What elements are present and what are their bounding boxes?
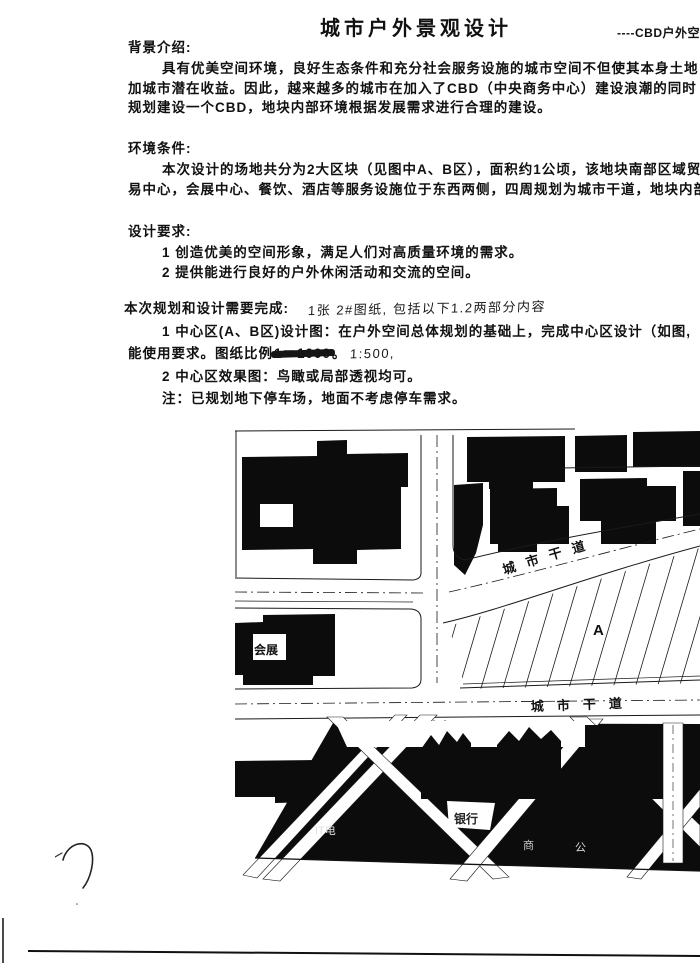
building-block [683, 471, 700, 526]
background-line: 加城市潜在收益。因此，越来越多的城市在加入了CBD（中央商务中心）建设浪潮的同时 [128, 77, 697, 97]
map-border-top [235, 429, 575, 431]
building-block [454, 483, 483, 575]
road-label-lower: 城市干道 [531, 695, 635, 714]
building-notch [260, 504, 293, 527]
requirement-item: 1 创造优美的空间形象，满足人们对高质量环境的需求。 [162, 241, 523, 261]
environment-line: 本次设计的场地共分为2大区块（见图中A、B区），面积约1公顷，该地块南部区域贸 [162, 158, 700, 178]
building-block [580, 478, 676, 544]
handwritten-scale: 1:500, [349, 346, 395, 362]
road-centerline [449, 529, 700, 592]
handwritten-note: 1张 2#图纸, 包括以下1.2两部分内容 [307, 296, 546, 319]
bank-label: 银行 [454, 811, 478, 826]
south-label-gong: 公 [575, 842, 586, 854]
page-title: 城市户外景观设计 [320, 12, 512, 41]
pen-mark [55, 838, 115, 913]
task-item: 1 中心区(A、B区)设计图：在户外空间总体规划的基础上，完成中心区设计（如图, [162, 320, 691, 340]
exhibition-label: 会展 [254, 642, 278, 657]
building-block [242, 440, 408, 564]
requirements-heading: 设计要求: [128, 220, 192, 240]
background-line: 具有优美空间环境，良好生态条件和充分社会服务设施的城市空间不但使其本身土地 [162, 57, 699, 77]
road-edge [463, 676, 700, 684]
building-block [575, 435, 627, 472]
environment-line: 易中心，会展中心、餐饮、酒店等服务设施位于东西两侧，四周规划为城市干道，地块内部 [128, 178, 700, 198]
road-sidewalk-line [235, 601, 413, 602]
left-scan-edge [2, 918, 4, 963]
site-plan-map: 城市干道 A 会展 城市干道 [235, 427, 700, 905]
environment-heading: 环境条件: [128, 137, 192, 157]
scanned-design-brief-page: 城市户外景观设计 ----CBD户外空间 背景介绍: 具有优美空间环境，良好生态… [0, 0, 700, 963]
task-note: 注：已规划地下停车场，地面不考虑停车需求。 [162, 387, 467, 407]
bottom-scan-line [0, 940, 700, 963]
background-line: 规划建设一个CBD，地块内部环境根据发展需求进行合理的建设。 [128, 96, 552, 116]
road-centerline [235, 592, 423, 593]
building-block [490, 488, 569, 552]
task-scale-line: 能使用要求。图纸比例1＝1000。1:500, [128, 342, 395, 362]
tasks-heading: 本次规划和设计需要完成: [124, 301, 289, 316]
corner-note: ----CBD户外空间 [617, 24, 700, 41]
building-block [585, 725, 663, 799]
zone-a-label: A [593, 622, 604, 639]
road-edge [235, 715, 700, 719]
building-block [633, 431, 700, 467]
background-heading: 背景介绍: [128, 36, 192, 56]
tasks-heading-line: 本次规划和设计需要完成: 1张 2#图纸, 包括以下1.2两部分内容 [124, 297, 546, 317]
south-label-shang: 商 [523, 838, 534, 852]
task-item: 2 中心区效果图：鸟瞰或局部透视均可。 [162, 365, 422, 385]
building-block [467, 436, 565, 489]
building-cluster [497, 727, 561, 799]
scale-text: 能使用要求。图纸比例 [128, 346, 273, 361]
utility-label: IT电 [315, 824, 336, 837]
road-edge [460, 680, 700, 688]
requirement-item: 2 提供能进行良好的户外休闲活动和交流的空间。 [162, 261, 480, 281]
struck-scale-value: 1＝1000 [273, 342, 332, 362]
